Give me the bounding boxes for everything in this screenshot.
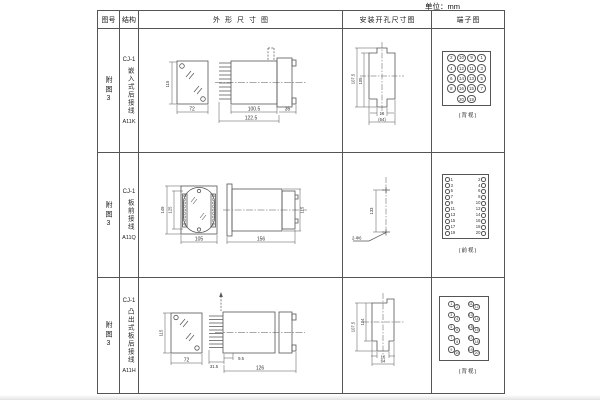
model-2: CJ-1 — [123, 189, 136, 195]
figure-no-cell-2: 附图3 — [98, 153, 120, 278]
terminal-cell-3: 12 34 56 78 910 1112 1314 1516 1718 1920… — [432, 278, 504, 393]
model-1: CJ-1 — [123, 57, 136, 63]
dim-115-side: 115 — [300, 206, 305, 213]
outline-cell-1: 115 72 100.5 35 122.5 — [139, 29, 343, 153]
figure-no-cell-1: 附图3 — [98, 29, 120, 153]
outline-drawing-a11k: 115 72 100.5 35 122.5 — [155, 29, 343, 153]
dim-31-5: 31.5 — [210, 364, 219, 369]
mounting-1: 嵌入式后接线 — [126, 67, 133, 115]
dim-35: 35 — [285, 107, 291, 113]
model-3: CJ-1 — [123, 298, 136, 304]
dim-64: 64 — [381, 359, 386, 364]
dim-122-5: 122.5 — [245, 116, 258, 122]
terminal-diagram-front-a11q: 12 34 56 78 910 1112 1314 1516 1718 1920 — [442, 174, 489, 239]
dim-115: 115 — [159, 329, 164, 336]
structure-cell-3: CJ-1 凸出式板后接线 A11H — [120, 278, 139, 393]
install-cell-1: 107.5 105 16 (64) — [343, 29, 432, 153]
outline-drawing-a11h: 115 72 31.5 9.5 126 — [155, 278, 343, 393]
header-install: 安装开孔尺寸图 — [343, 11, 432, 29]
dim-16: 16 — [380, 111, 385, 116]
dim-104: 104 — [360, 318, 365, 326]
figure-no-1: 附图3 — [105, 76, 112, 105]
install-cell-3: 107.5 104 16 64 — [343, 278, 432, 393]
terminal-caption-3: (背视) — [432, 367, 504, 375]
code-2: A11Q — [122, 235, 136, 241]
header-structure: 结构 — [120, 11, 139, 29]
outline-cell-2: 149 125 105 156 115 — [139, 153, 343, 278]
mounting-3: 凸出式板后接线 — [126, 308, 133, 364]
figure-no-2: 附图3 — [105, 201, 112, 230]
dim-125: 125 — [168, 206, 173, 214]
dimension-table: 图号 结构 外形尺寸图 安装开孔尺寸图 端子图 附图3 CJ-1 嵌入式后接线 … — [97, 10, 505, 394]
dim-149: 149 — [160, 206, 165, 214]
dim-126: 126 — [256, 366, 265, 372]
header-figure-no: 图号 — [98, 11, 120, 29]
code-1: A11K — [122, 119, 135, 125]
install-drawing-a11q: 133 2-Φ6 — [343, 153, 427, 278]
install-drawing-a11k: 107.5 105 16 (64) — [343, 29, 427, 153]
stud-group-left: 12 34 56 78 910 — [448, 299, 460, 358]
label-2-phi6: 2-Φ6 — [352, 236, 362, 241]
dim-133: 133 — [369, 207, 374, 215]
mounting-2: 板前接线 — [126, 199, 133, 231]
outline-drawing-a11q: 149 125 105 156 115 — [155, 153, 343, 278]
dim-72: 72 — [189, 107, 195, 113]
dim-156: 156 — [257, 237, 266, 243]
outline-cell-3: 115 72 31.5 9.5 126 — [139, 278, 343, 393]
header-terminal: 端子图 — [432, 11, 504, 29]
dim-107-5: 107.5 — [351, 321, 356, 332]
dim-9-5: 9.5 — [238, 356, 244, 361]
stud-group-right: 1112 1314 1516 1718 1920 — [468, 299, 480, 358]
dim-100-5: 100.5 — [248, 107, 261, 113]
terminal-cell-1: 21091 412113 614135 816157 2019 (背视) — [432, 29, 504, 153]
terminal-cell-2: 12 34 56 78 910 1112 1314 1516 1718 1920… — [432, 153, 504, 278]
terminal-caption-1: (背视) — [432, 111, 504, 119]
install-cell-2: 133 2-Φ6 — [343, 153, 432, 278]
install-drawing-a11h: 107.5 104 16 64 — [343, 278, 427, 393]
terminal-diagram-rear-a11h: 12 34 56 78 910 1112 1314 1516 1718 1920 — [439, 296, 489, 361]
structure-cell-2: CJ-1 板前接线 A11Q — [120, 153, 139, 278]
figure-no-cell-3: 附图3 — [98, 278, 120, 393]
header-outline: 外形尺寸图 — [139, 11, 343, 29]
figure-no-3: 附图3 — [105, 321, 112, 350]
terminal-diagram-rear-a11k: 21091 412113 614135 816157 2019 — [442, 51, 491, 106]
dim-105: 105 — [358, 77, 363, 85]
code-3: A11H — [122, 368, 135, 374]
dim-64: (64) — [378, 117, 386, 122]
structure-cell-1: CJ-1 嵌入式后接线 A11K — [120, 29, 139, 153]
dim-107-5: 107.5 — [351, 73, 356, 84]
dim-115: 115 — [165, 80, 170, 87]
terminal-caption-2: (前视) — [432, 246, 504, 254]
dim-105: 105 — [195, 237, 204, 243]
dim-72: 72 — [184, 358, 190, 364]
page-bottom-shadow — [0, 395, 600, 400]
